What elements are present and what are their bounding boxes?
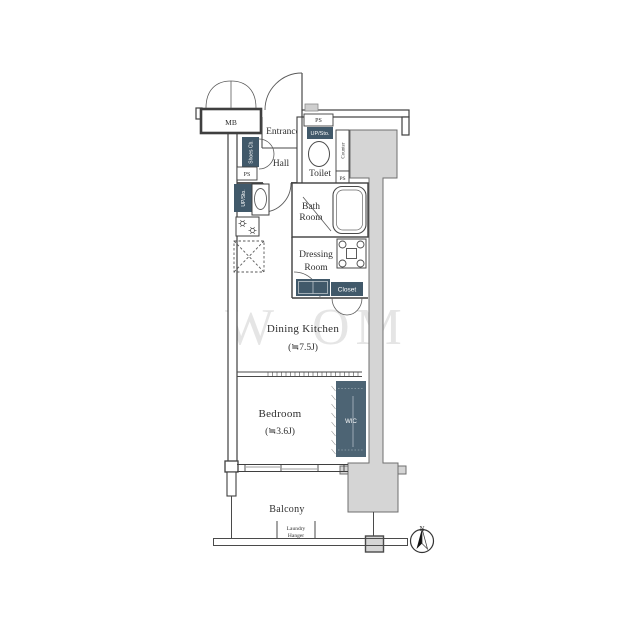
ps-label-counter: PS [339,176,345,182]
wic-closet: WIC [332,381,367,457]
hall-toilet-wall [297,117,302,183]
sliding-partition [237,372,362,377]
closet-label: Closet [338,287,357,294]
wall-end-bottom-left [225,461,238,472]
refrigerator-space [234,241,264,272]
up-storage-label-kitchen: UP/Sto. [241,189,247,206]
wic-label: WIC [345,419,357,425]
dining-kitchen-label: Dining Kitchen [267,323,340,335]
wall-left [228,133,237,463]
bath-room: Bath Room [292,183,368,237]
shoes-cabinet-label: Shoes Cb. [249,140,255,163]
stove [236,217,259,236]
entrance-threshold [305,104,318,111]
laundry-hanger: Laundry Hanger [277,521,315,539]
mb-label: MB [225,118,237,127]
ps-label-hall: PS [244,172,251,178]
counter-label: Counter [342,142,347,158]
floor-plan-page: W OM MB Entrance H [0,0,628,640]
entrance-door [265,73,318,111]
up-storage-label-toilet: UP/Sto. [311,131,330,137]
structure-tab-right [398,466,406,474]
entrance-door-arc [265,73,302,110]
ps-label-toilet: PS [315,118,322,124]
toilet-label: Toilet [309,169,331,179]
shoes-cabinet-doors [259,139,274,169]
bedroom: Bedroom (≒3.6J) WIC [237,381,366,472]
balcony-label: Balcony [269,504,304,515]
bedroom-window [237,465,348,472]
dressing-label-1: Dressing [299,250,333,260]
hall-label: Hall [273,159,290,169]
entrance-label: Entrance [266,127,300,137]
toilet-bowl [309,142,330,167]
wall-top-right-corner [402,117,409,135]
bedroom-size: (≒3.6J) [265,426,295,437]
sliding-partition-hatch [268,372,358,377]
laundry-label-1: Laundry [287,526,306,532]
dressing-label-2: Room [304,263,328,273]
meter-box: MB [201,81,261,133]
compass-north-label: N [419,525,424,533]
wic-door-marks [332,386,336,454]
laundry-label-2: Hanger [288,533,304,539]
floor-plan-drawing: W OM MB Entrance H [0,0,628,640]
bedroom-label: Bedroom [258,408,301,420]
vanity-unit [296,279,330,296]
dining-kitchen-size: (≒7.5J) [288,342,318,353]
balcony-pillar [227,472,236,496]
mb-doors [206,81,256,108]
toilet-room: PS UP/Sto. Toilet Counter PS [304,114,349,184]
bath-label-2: Room [299,213,323,223]
kitchen: UP/Sto. [234,184,269,272]
washer-pan [337,239,366,268]
compass: N [411,525,434,553]
bathtub [333,187,366,234]
